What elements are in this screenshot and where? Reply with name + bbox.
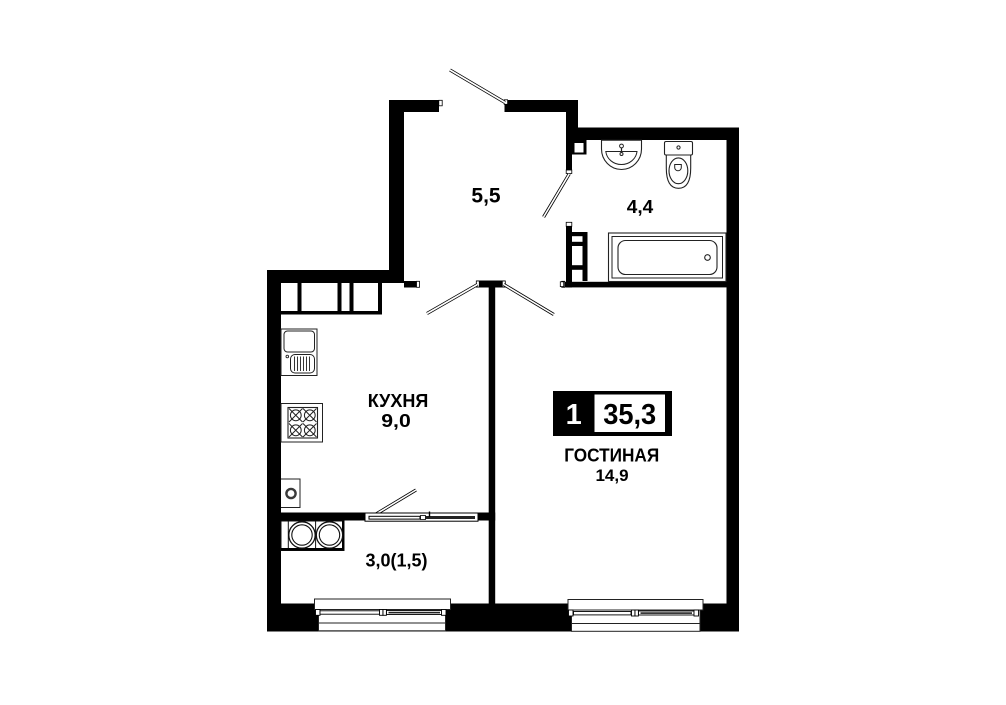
svg-text:4,4: 4,4 bbox=[627, 197, 654, 217]
svg-text:1: 1 bbox=[566, 399, 582, 431]
svg-text:9,0: 9,0 bbox=[381, 411, 411, 431]
svg-text:14,9: 14,9 bbox=[595, 466, 628, 485]
svg-text:5,5: 5,5 bbox=[471, 185, 501, 208]
svg-text:35,3: 35,3 bbox=[603, 399, 656, 431]
svg-text:3,0(1,5): 3,0(1,5) bbox=[365, 551, 427, 571]
svg-text:КУХНЯ: КУХНЯ bbox=[368, 391, 429, 411]
svg-text:ГОСТИНАЯ: ГОСТИНАЯ bbox=[564, 446, 659, 466]
